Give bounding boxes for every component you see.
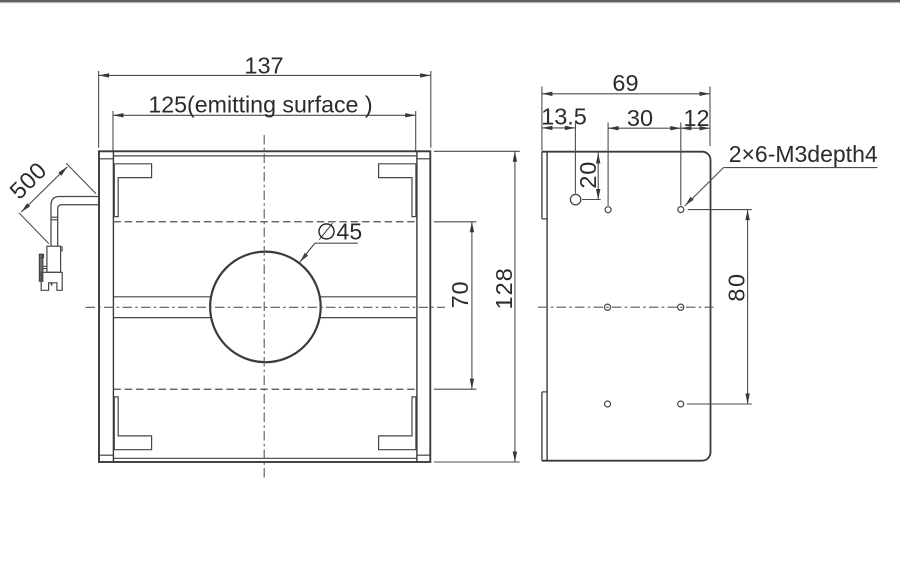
svg-text:137: 137 (244, 53, 283, 79)
svg-text:∅45: ∅45 (317, 218, 363, 244)
svg-text:2×6-M3depth4: 2×6-M3depth4 (729, 141, 878, 167)
svg-text:80: 80 (724, 272, 750, 301)
svg-text:13.5: 13.5 (541, 103, 587, 129)
svg-text:12: 12 (683, 105, 709, 131)
svg-text:125(emitting surface ): 125(emitting surface ) (148, 92, 372, 118)
svg-text:128: 128 (491, 267, 517, 310)
svg-text:20: 20 (575, 161, 601, 189)
svg-text:69: 69 (612, 70, 638, 96)
svg-text:30: 30 (627, 105, 653, 131)
svg-text:70: 70 (447, 281, 473, 309)
